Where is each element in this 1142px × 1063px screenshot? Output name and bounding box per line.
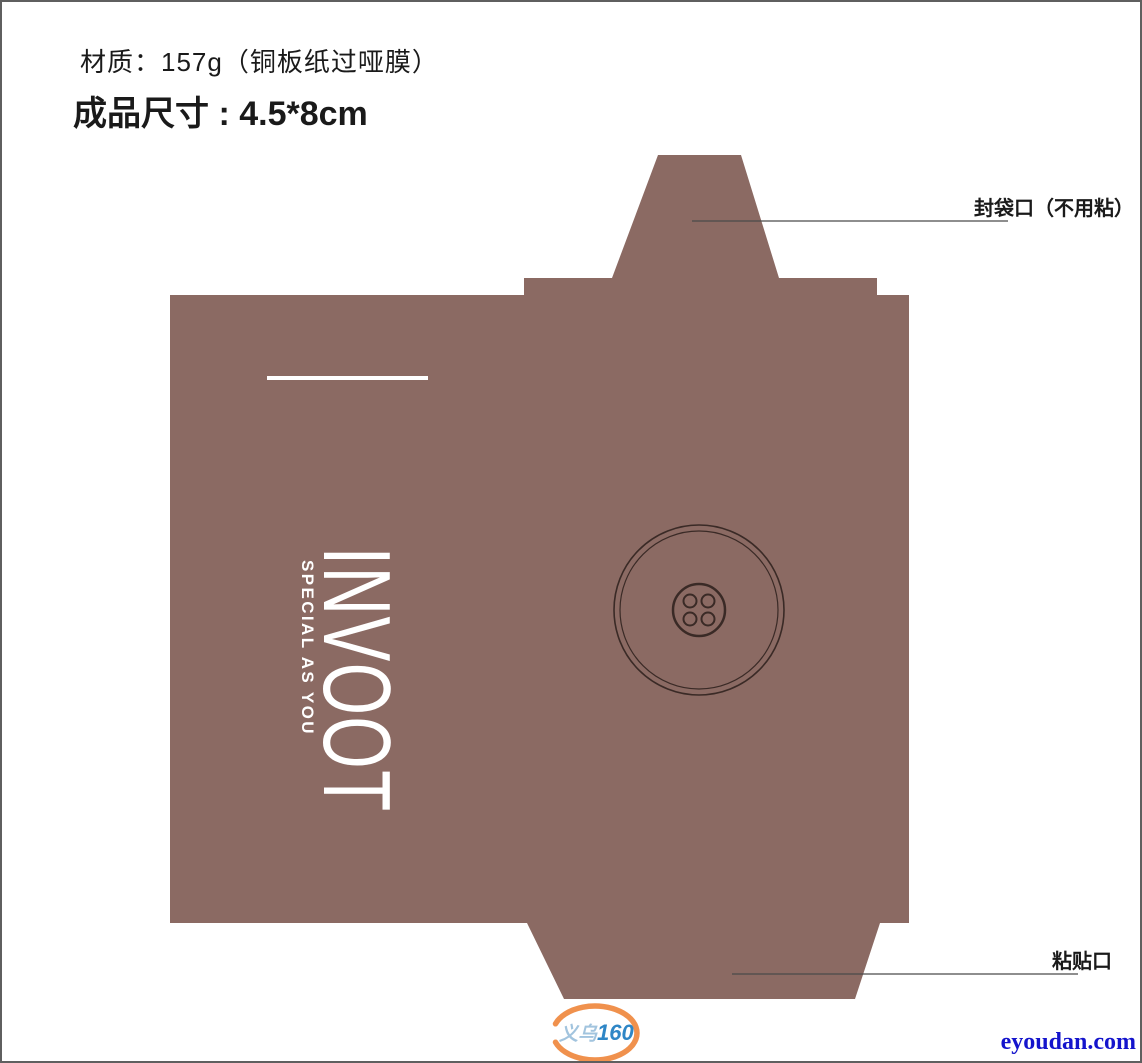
- brand-name-text: INVOOT: [317, 547, 395, 750]
- brand-artwork: INVOOT SPECIAL AS YOU: [297, 503, 395, 793]
- watermark-logo: 义乌 160: [550, 1002, 646, 1062]
- envelope-dieline-shape: [170, 155, 909, 999]
- logo-cn-text: 义乌: [559, 1019, 597, 1046]
- dieline-proof-page: 材质：157g（铜板纸过哑膜） 成品尺寸 : 4.5*8cm INVOOT SP…: [0, 0, 1142, 1063]
- bottom-flap-callout-label: 粘贴口: [1052, 945, 1112, 974]
- website-text: eyoudan.com: [1001, 1029, 1136, 1056]
- artwork-dash-line: [267, 376, 428, 380]
- logo-number-text: 160: [597, 1020, 634, 1046]
- dieline-drawing: [2, 2, 1142, 1063]
- top-flap-callout-label: 封袋口（不用粘）: [974, 192, 1134, 221]
